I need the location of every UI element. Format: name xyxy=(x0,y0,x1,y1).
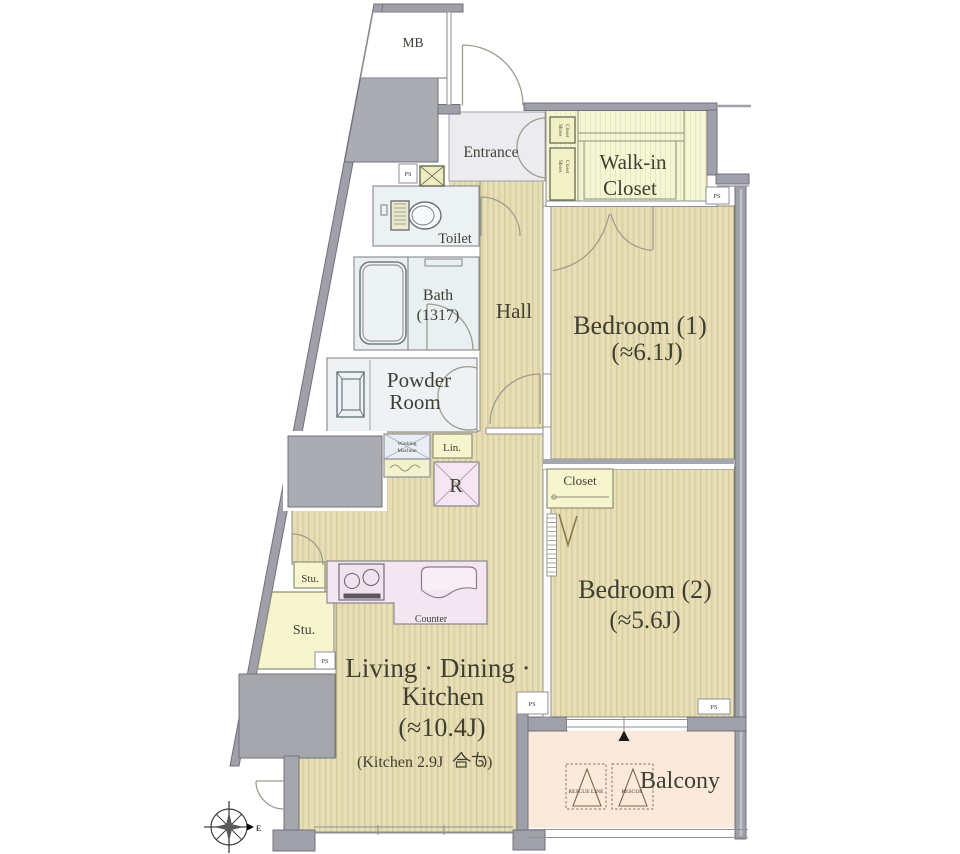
svg-text:Bath: Bath xyxy=(423,287,453,304)
svg-text:PS: PS xyxy=(321,658,329,665)
svg-text:PS: PS xyxy=(710,704,718,711)
svg-text:PS: PS xyxy=(528,701,536,708)
svg-text:Walk-in: Walk-in xyxy=(599,150,667,174)
svg-text:(Kitchen 2.9J: (Kitchen 2.9J xyxy=(357,754,443,771)
svg-text:(1317): (1317) xyxy=(417,307,460,324)
svg-text:Kitchen: Kitchen xyxy=(402,682,484,711)
svg-text:E: E xyxy=(256,824,261,833)
svg-text:Room: Room xyxy=(389,390,440,414)
svg-text:R: R xyxy=(449,475,463,497)
svg-text:Machine: Machine xyxy=(397,448,417,454)
svg-text:PS: PS xyxy=(404,171,412,178)
svg-text:Bedroom (2): Bedroom (2) xyxy=(578,575,712,604)
svg-text:Counter: Counter xyxy=(415,614,448,625)
svg-text:Shoes: Shoes xyxy=(557,124,563,136)
svg-text:(≈10.4J): (≈10.4J) xyxy=(398,713,485,742)
svg-text:Stu.: Stu. xyxy=(301,573,319,585)
svg-text:Bedroom (1): Bedroom (1) xyxy=(573,311,707,340)
svg-text:Hall: Hall xyxy=(496,299,532,323)
svg-text:Closet: Closet xyxy=(564,124,570,138)
svg-text:): ) xyxy=(487,754,492,771)
svg-text:Closet: Closet xyxy=(564,160,570,174)
svg-text:Living · Dining ·: Living · Dining · xyxy=(345,653,530,683)
svg-text:RESCUE LINE: RESCUE LINE xyxy=(569,789,605,795)
svg-text:Closet: Closet xyxy=(603,176,657,200)
svg-text:Washing: Washing xyxy=(397,441,416,447)
svg-text:Toilet: Toilet xyxy=(438,231,472,247)
svg-text:Closet: Closet xyxy=(563,473,597,488)
svg-text:PS: PS xyxy=(713,193,721,200)
svg-text:Powder: Powder xyxy=(387,368,451,392)
svg-text:Entrance: Entrance xyxy=(463,144,518,161)
svg-text:Shoes: Shoes xyxy=(557,160,563,172)
svg-text:Balcony: Balcony xyxy=(640,768,720,794)
svg-text:(≈5.6J): (≈5.6J) xyxy=(609,607,680,634)
svg-text:MB: MB xyxy=(402,35,423,50)
svg-text:Stu.: Stu. xyxy=(293,623,315,638)
svg-text:Lin.: Lin. xyxy=(443,442,461,454)
svg-text:RESCUE: RESCUE xyxy=(621,789,643,795)
svg-text:(≈6.1J): (≈6.1J) xyxy=(611,339,682,366)
